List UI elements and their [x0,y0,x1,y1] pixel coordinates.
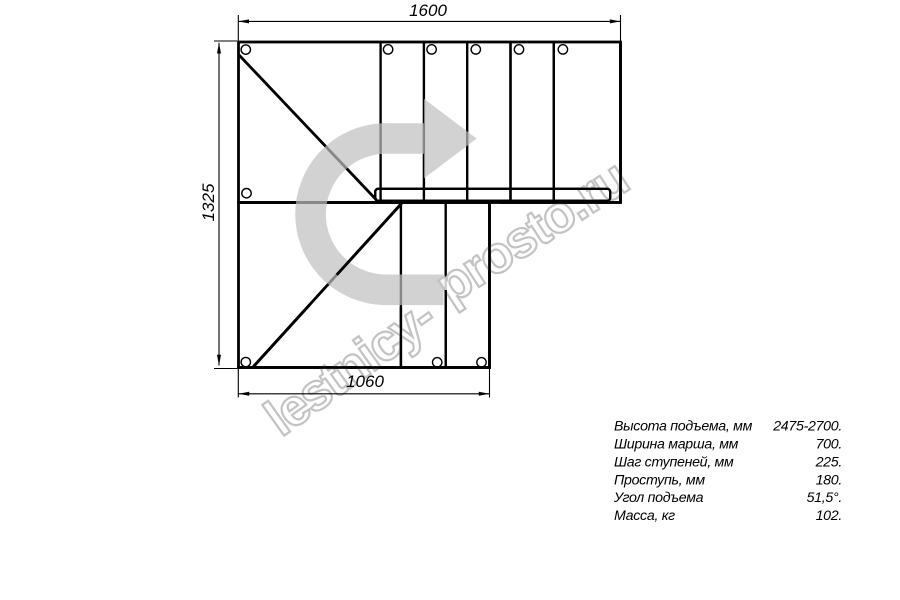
svg-text:2475-2700.: 2475-2700. [772,419,842,435]
svg-text:225.: 225. [815,454,842,470]
svg-text:Высота подъема, мм: Высота подъема, мм [614,419,753,435]
svg-text:51,5°.: 51,5°. [807,490,842,506]
svg-text:Шаг ступеней, мм: Шаг ступеней, мм [614,454,734,470]
svg-text:1600: 1600 [409,1,447,20]
svg-text:1060: 1060 [346,372,384,391]
svg-text:Ширина марша, мм: Ширина марша, мм [614,437,739,453]
svg-text:Проступь, мм: Проступь, мм [614,472,705,488]
svg-text:Масса, кг: Масса, кг [614,508,675,524]
svg-text:102.: 102. [816,508,842,524]
svg-text:Угол подъема: Угол подъема [613,490,704,506]
svg-text:700.: 700. [816,437,842,453]
svg-text:180.: 180. [816,472,842,488]
svg-text:1325: 1325 [199,183,218,221]
